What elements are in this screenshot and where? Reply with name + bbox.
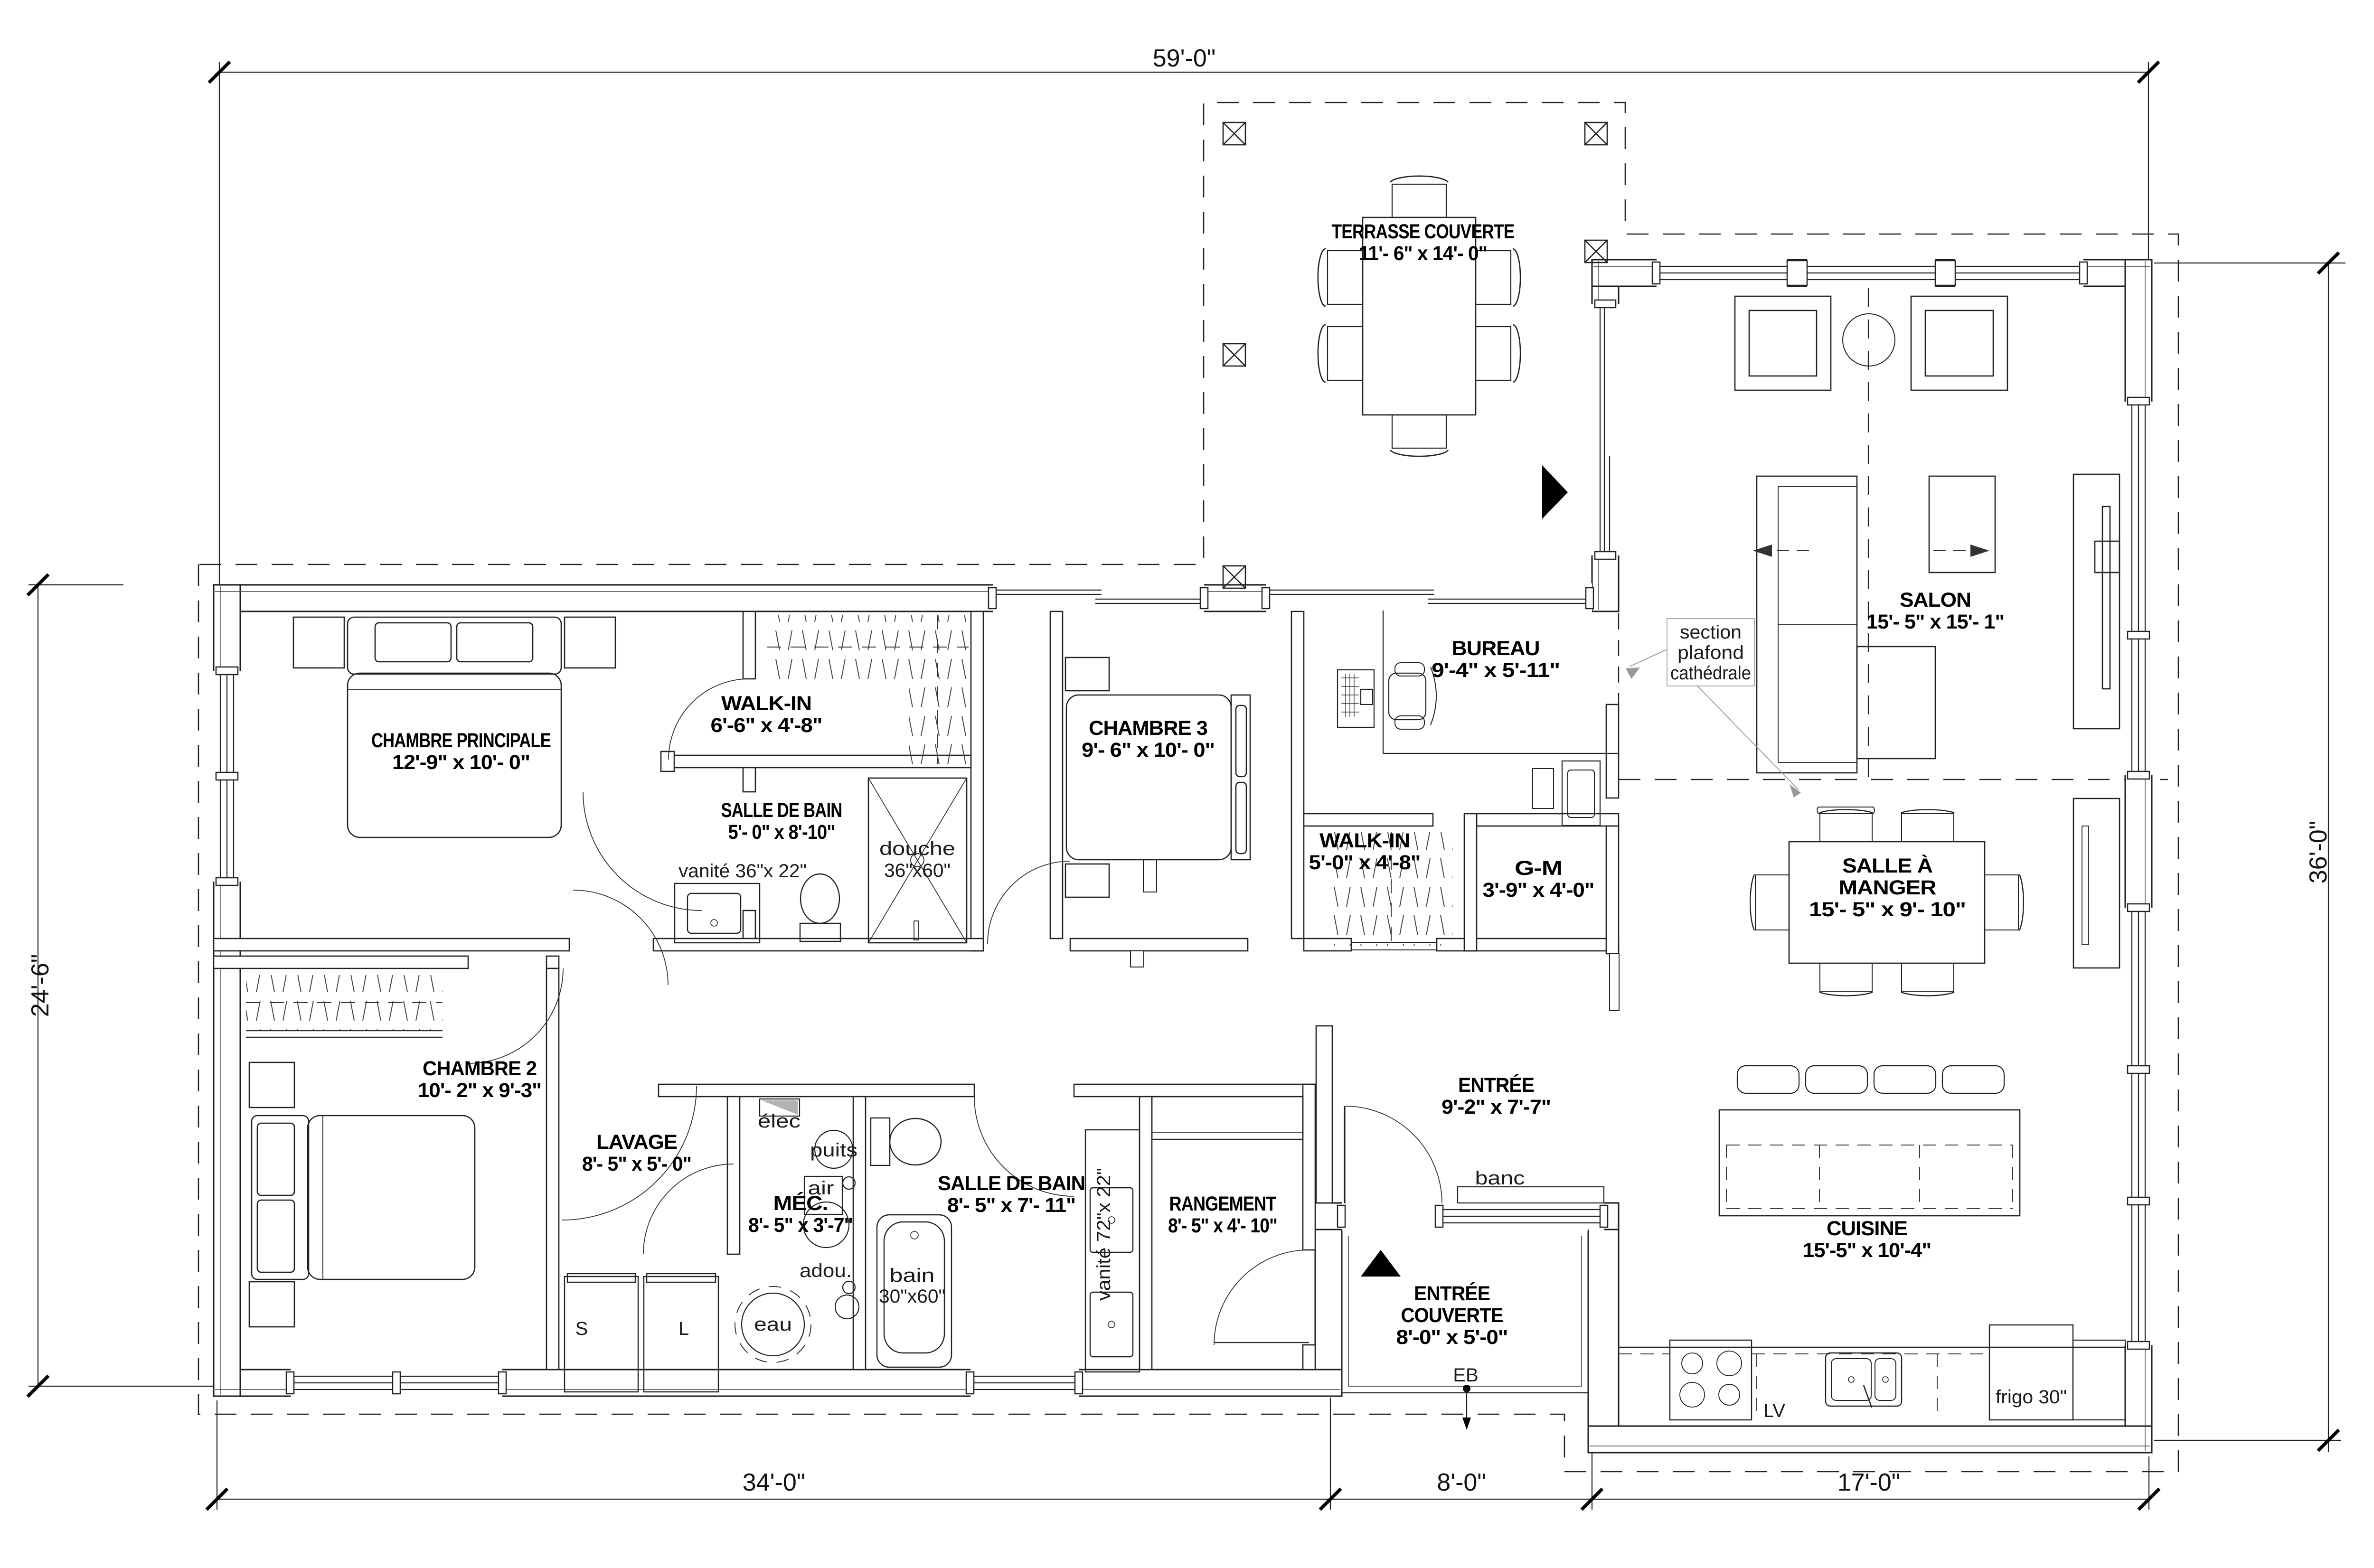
svg-text:ENTRÉE: ENTRÉE [1414,1282,1490,1305]
svg-text:9'- 6" x 10'- 0": 9'- 6" x 10'- 0" [1082,739,1215,761]
svg-text:36'-0": 36'-0" [2305,821,2332,883]
svg-text:L: L [678,1318,689,1339]
svg-text:banc: banc [1475,1168,1525,1189]
svg-text:élec: élec [758,1111,801,1132]
svg-text:COUVERTE: COUVERTE [1401,1304,1503,1327]
svg-text:G-M: G-M [1515,857,1562,880]
svg-text:17'-0": 17'-0" [1837,1469,1900,1496]
svg-text:15'- 5" x 15'- 1": 15'- 5" x 15'- 1" [1866,610,2004,633]
svg-text:bain: bain [890,1265,935,1286]
svg-text:LAVAGE: LAVAGE [596,1131,677,1154]
svg-text:SALLE DE BAIN: SALLE DE BAIN [938,1172,1085,1195]
svg-text:8'- 5" x 3'-7": 8'- 5" x 3'-7" [748,1214,853,1237]
svg-text:6'-6" x 4'-8": 6'-6" x 4'-8" [711,714,822,737]
svg-text:5'- 0" x 8'-10": 5'- 0" x 8'-10" [728,821,835,844]
svg-text:WALK-IN: WALK-IN [721,692,811,715]
svg-text:eau: eau [754,1314,792,1335]
svg-text:15'-5" x 10'-4": 15'-5" x 10'-4" [1803,1239,1931,1262]
svg-text:9'-4" x 5'-11": 9'-4" x 5'-11" [1432,659,1560,682]
svg-text:36"x60": 36"x60" [884,860,951,881]
svg-text:12'-9" x 10'- 0": 12'-9" x 10'- 0" [392,751,530,774]
svg-text:SALLE À: SALLE À [1842,854,1932,877]
svg-text:15'- 5" x 9'- 10": 15'- 5" x 9'- 10" [1809,898,1966,921]
svg-text:air: air [808,1178,834,1199]
svg-text:S: S [575,1318,588,1339]
svg-text:3'-9" x 4'-0": 3'-9" x 4'-0" [1483,879,1594,901]
svg-text:8'- 5" x 4'- 10": 8'- 5" x 4'- 10" [1168,1214,1277,1237]
svg-text:11'- 6" x 14'- 0": 11'- 6" x 14'- 0" [1359,242,1487,265]
svg-text:plafond: plafond [1677,642,1744,663]
svg-text:section: section [1680,622,1742,643]
svg-text:8'-0": 8'-0" [1437,1469,1486,1496]
svg-text:EB: EB [1453,1365,1478,1386]
svg-text:5'-0" x 4'-8": 5'-0" x 4'-8" [1309,851,1421,874]
svg-text:ENTRÉE: ENTRÉE [1458,1074,1534,1097]
svg-text:vanité 72"x 22": vanité 72"x 22" [1093,1168,1114,1301]
svg-text:cathédrale: cathédrale [1670,663,1751,684]
svg-text:TERRASSE COUVERTE: TERRASSE COUVERTE [1332,220,1515,243]
svg-text:RANGEMENT: RANGEMENT [1169,1192,1277,1215]
svg-text:vanité 36"x 22": vanité 36"x 22" [678,861,807,882]
svg-text:CHAMBRE 2: CHAMBRE 2 [423,1057,537,1080]
svg-text:8'- 5" x 7'- 11": 8'- 5" x 7'- 11" [947,1194,1075,1217]
svg-text:8'-0" x 5'-0": 8'-0" x 5'-0" [1396,1326,1508,1349]
svg-text:frigo 30": frigo 30" [1996,1387,2067,1408]
svg-text:30"x60": 30"x60" [879,1286,945,1307]
svg-text:10'- 2" x 9'-3": 10'- 2" x 9'-3" [418,1079,541,1102]
svg-text:puits: puits [810,1140,857,1161]
svg-text:SALLE DE BAIN: SALLE DE BAIN [721,799,842,822]
svg-text:9'-2" x 7'-7": 9'-2" x 7'-7" [1441,1096,1551,1118]
svg-text:34'-0": 34'-0" [743,1469,805,1496]
svg-text:BUREAU: BUREAU [1452,637,1540,660]
svg-text:LV: LV [1763,1400,1785,1421]
svg-text:WALK-IN: WALK-IN [1319,829,1410,852]
svg-text:adou.: adou. [800,1260,852,1281]
svg-text:SALON: SALON [1900,589,1971,611]
svg-text:douche: douche [879,838,955,859]
svg-text:8'- 5" x 5'- 0": 8'- 5" x 5'- 0" [582,1153,691,1175]
svg-text:CHAMBRE PRINCIPALE: CHAMBRE PRINCIPALE [371,729,551,752]
svg-text:CHAMBRE 3: CHAMBRE 3 [1089,717,1207,740]
svg-text:CUISINE: CUISINE [1827,1217,1907,1240]
svg-text:MANGER: MANGER [1839,876,1937,899]
svg-text:24'-6": 24'-6" [27,954,54,1017]
svg-text:59'-0": 59'-0" [1153,45,1215,72]
